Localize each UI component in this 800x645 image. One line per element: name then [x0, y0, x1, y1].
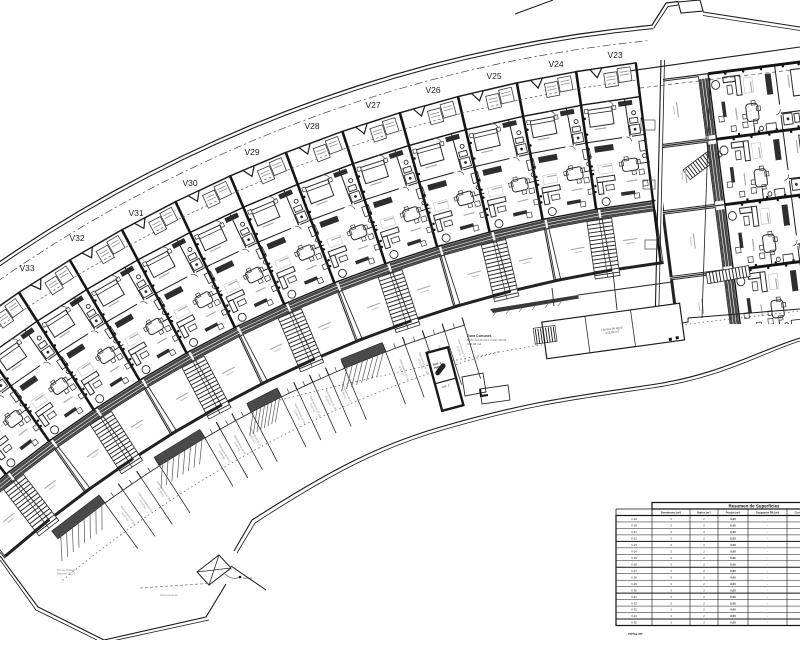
svg-text:0,00: 0,00: [730, 530, 736, 534]
svg-text:Baños (m²): Baños (m²): [697, 511, 711, 515]
svg-text:-: -: [767, 569, 768, 573]
svg-text:-: -: [767, 582, 768, 586]
svg-text:0,00: 0,00: [730, 537, 736, 541]
svg-text:0,00: 0,00: [730, 601, 736, 605]
svg-text:V31: V31: [128, 208, 143, 218]
svg-text:0,00: 0,00: [730, 550, 736, 554]
svg-text:V27: V27: [365, 100, 380, 110]
svg-text:-: -: [767, 588, 768, 592]
svg-text:0,00: 0,00: [730, 569, 736, 573]
svg-text:V-24: V-24: [631, 550, 637, 554]
svg-text:0,00: 0,00: [730, 588, 736, 592]
svg-text:V26: V26: [425, 85, 440, 95]
svg-text:V-26: V-26: [631, 563, 637, 567]
svg-text:V-20: V-20: [631, 524, 637, 528]
svg-text:V-31: V-31: [631, 595, 637, 599]
svg-text:V-30: V-30: [631, 588, 637, 592]
svg-text:V28: V28: [304, 121, 319, 131]
svg-text:Resumen de Superficies: Resumen de Superficies: [729, 504, 781, 509]
svg-text:0,00: 0,00: [730, 563, 736, 567]
svg-text:Acceso: Acceso: [243, 576, 253, 580]
svg-text:V33: V33: [19, 263, 34, 273]
svg-text:V-21: V-21: [631, 530, 637, 534]
svg-text:-: -: [767, 621, 768, 625]
svg-text:Rasante 102,30: Rasante 102,30: [57, 572, 76, 576]
svg-text:0,00: 0,00: [730, 595, 736, 599]
svg-text:V30: V30: [182, 178, 197, 188]
svg-text:V-28: V-28: [631, 575, 637, 579]
svg-text:-: -: [767, 595, 768, 599]
svg-text:V24: V24: [548, 59, 563, 69]
svg-text:-: -: [767, 517, 768, 521]
svg-text:V25: V25: [486, 71, 501, 81]
svg-text:V-22: V-22: [631, 537, 637, 541]
svg-text:Dormitorios (m²): Dormitorios (m²): [661, 511, 681, 515]
svg-text:V-27: V-27: [631, 569, 637, 573]
svg-text:0,00: 0,00: [730, 543, 736, 547]
svg-text:Zona Comunes: Zona Comunes: [467, 334, 492, 338]
svg-text:V-25: V-25: [631, 556, 637, 560]
svg-text:V29: V29: [244, 147, 259, 157]
svg-text:Porche (m²): Porche (m²): [726, 511, 741, 515]
svg-text:-: -: [767, 575, 768, 579]
svg-text:Acceso Rodado: Acceso Rodado: [57, 568, 76, 572]
svg-text:V-23: V-23: [631, 543, 637, 547]
svg-text:-: -: [767, 537, 768, 541]
svg-text:V-29: V-29: [631, 582, 637, 586]
svg-text:-: -: [767, 524, 768, 528]
svg-text:V-19: V-19: [631, 517, 637, 521]
svg-text:0,00: 0,00: [730, 517, 736, 521]
svg-text:0,00: 0,00: [730, 614, 736, 618]
svg-text:0,00: 0,00: [730, 621, 736, 625]
svg-text:-: -: [767, 550, 768, 554]
svg-text:V-35: V-35: [631, 621, 637, 625]
svg-text:-: -: [767, 608, 768, 612]
svg-text:V-33: V-33: [631, 608, 637, 612]
svg-text:0,00: 0,00: [730, 524, 736, 528]
svg-text:0,00: 0,00: [730, 608, 736, 612]
svg-text:V32: V32: [69, 233, 84, 243]
svg-text:Acera peatonal: Acera peatonal: [160, 593, 178, 597]
svg-text:-: -: [767, 556, 768, 560]
svg-text:Ocupación PB (m²): Ocupación PB (m²): [756, 511, 779, 515]
svg-text:-: -: [767, 563, 768, 567]
svg-text:0,00: 0,00: [730, 556, 736, 560]
svg-text:-: -: [767, 614, 768, 618]
svg-text:Construida PB (m²): Construida PB (m²): [795, 511, 800, 515]
svg-text:V-34: V-34: [631, 614, 637, 618]
svg-text:470,00 m2: 470,00 m2: [467, 342, 482, 346]
svg-text:-: -: [767, 543, 768, 547]
svg-text:-: -: [767, 530, 768, 534]
svg-text:0,00: 0,00: [730, 582, 736, 586]
svg-text:0,00: 0,00: [730, 575, 736, 579]
svg-text:V23: V23: [607, 50, 622, 60]
svg-text:V-32: V-32: [631, 601, 637, 605]
svg-text:TOTAL PP: TOTAL PP: [628, 632, 643, 636]
svg-text:-: -: [767, 601, 768, 605]
